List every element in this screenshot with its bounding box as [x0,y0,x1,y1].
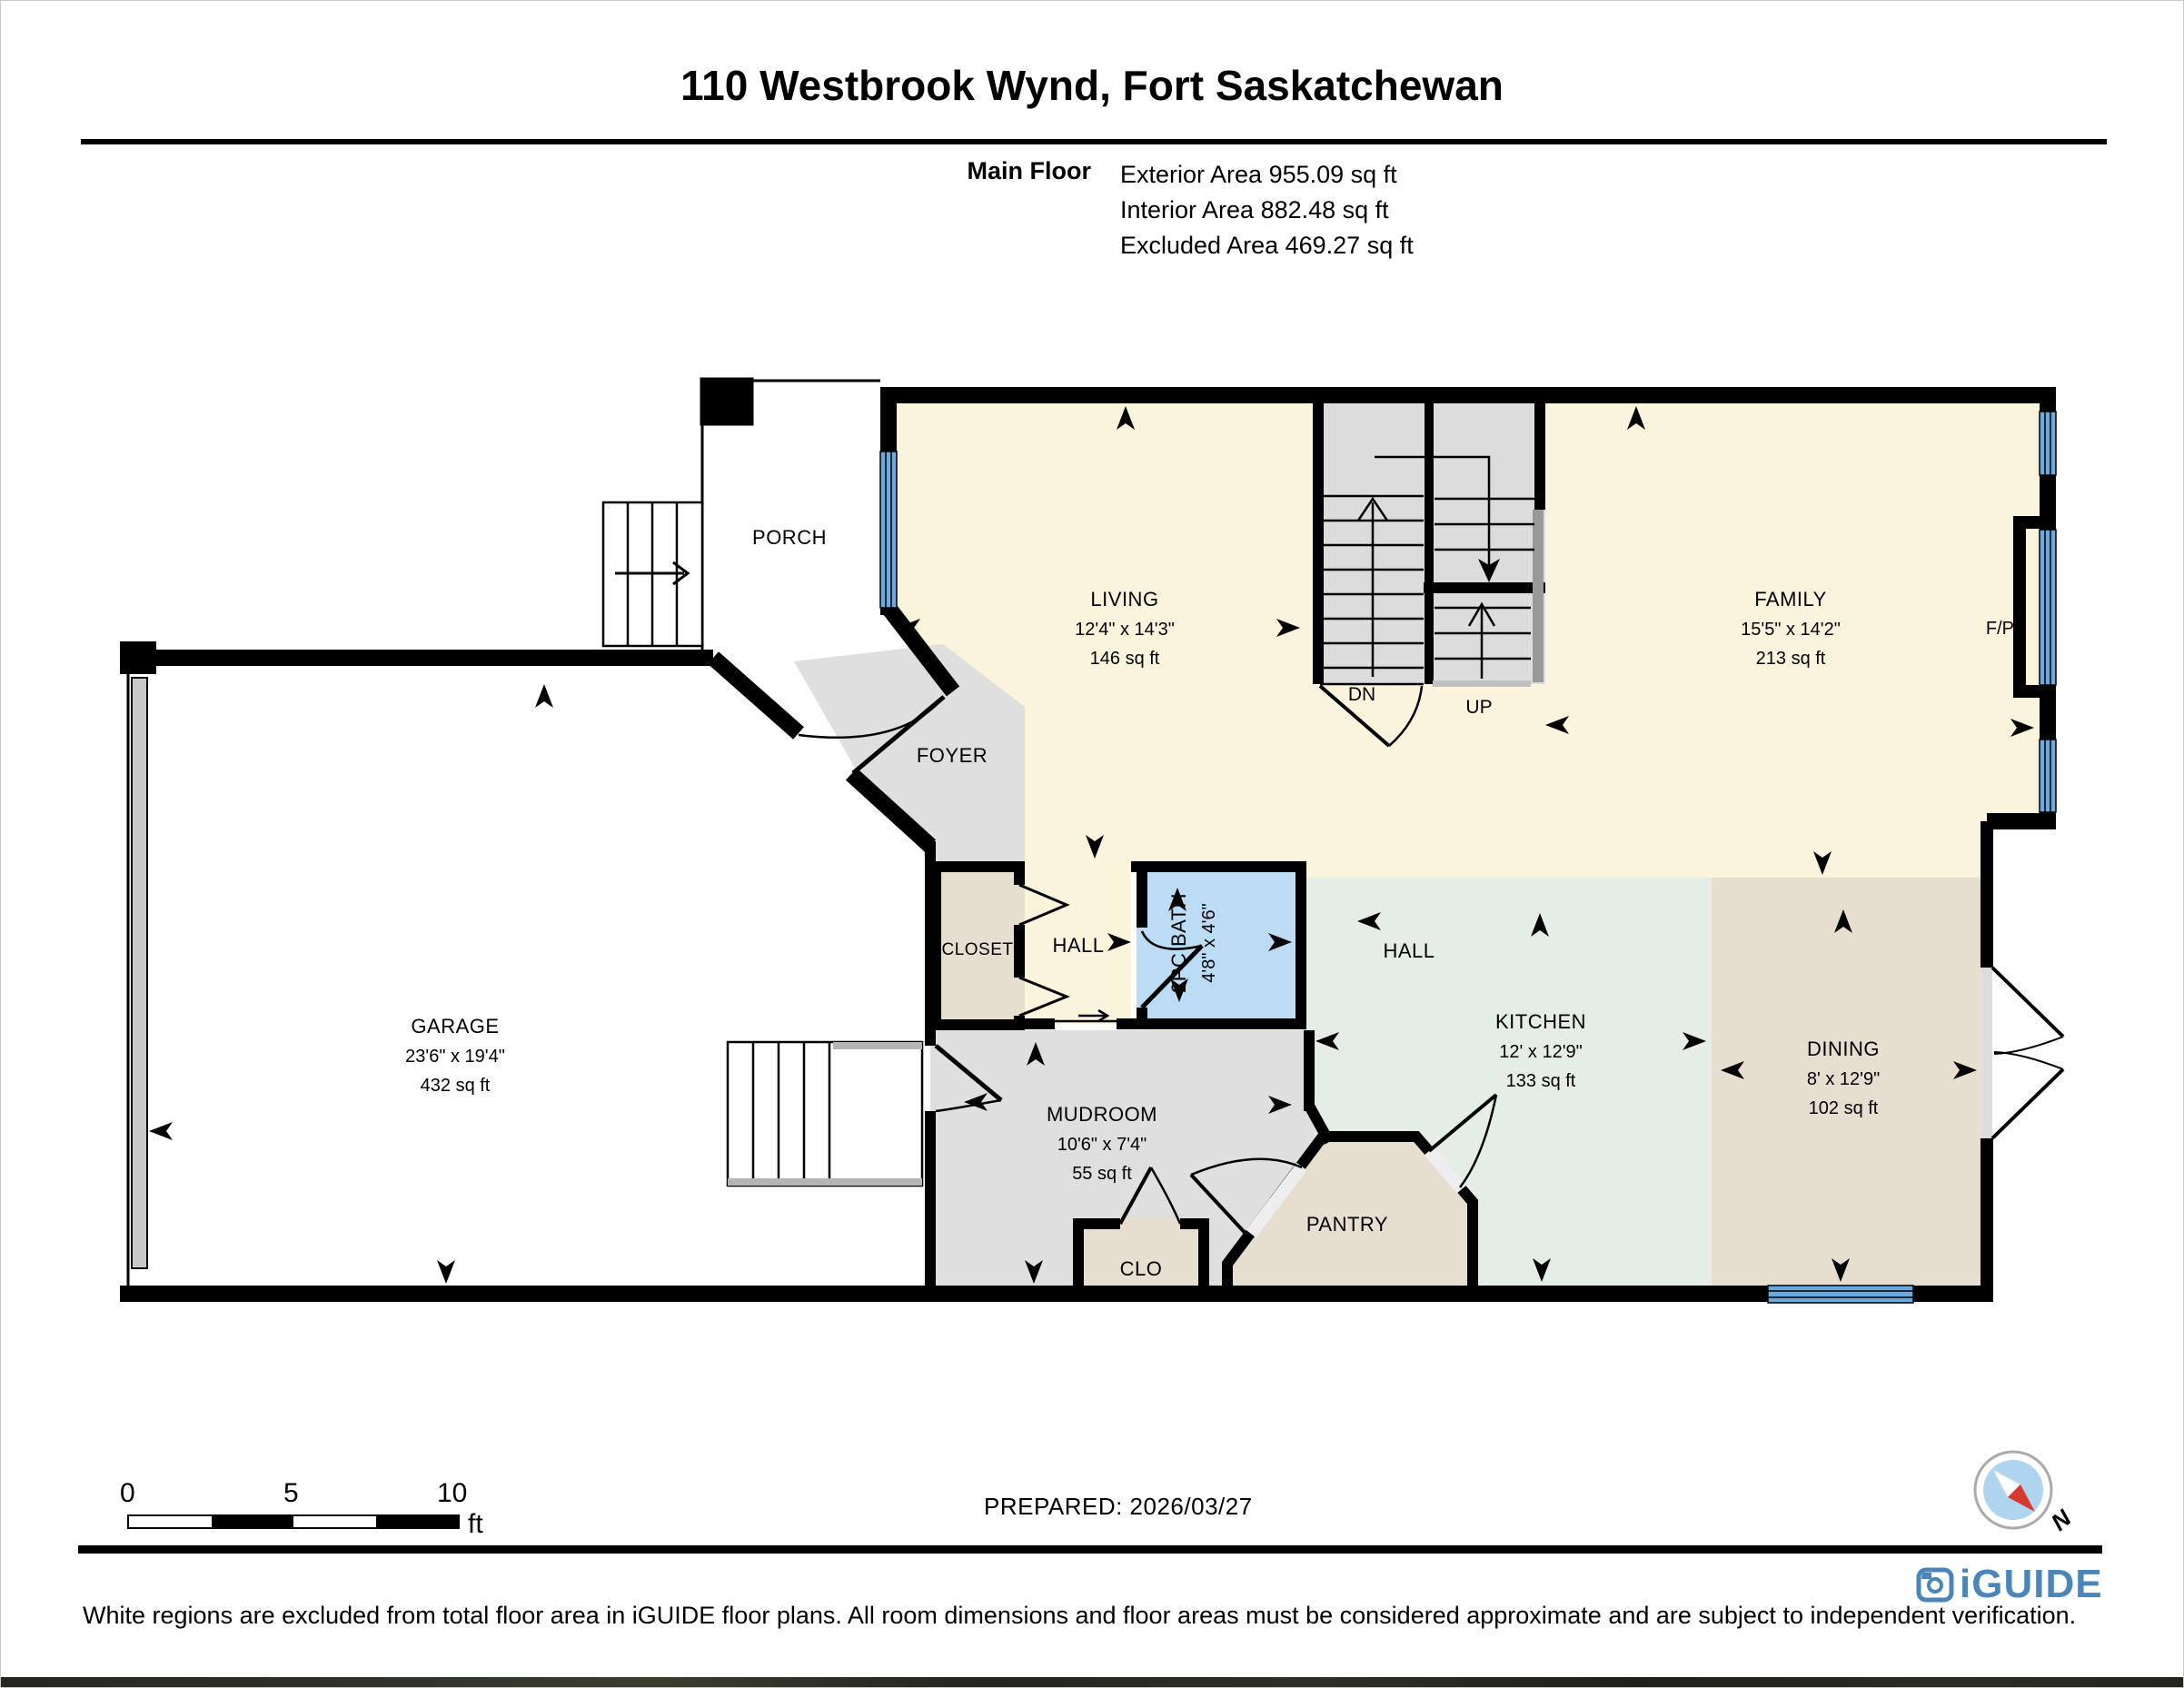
floorplan-page: 110 Westbrook Wynd, Fort Saskatchewan Ma… [0,0,2184,1688]
stairs-down-label: DN [1348,684,1375,705]
room-area-living: 146 sq ft [1090,649,1160,669]
compass-north-label: N [2046,1504,2078,1536]
room-label-porch: PORCH [752,526,827,549]
room-area-family: 213 sq ft [1756,649,1826,669]
dining-window [1768,1286,1913,1303]
room-label-dining: DINING [1807,1038,1880,1060]
footer-divider [78,1545,2102,1554]
room-area-garage: 432 sq ft [421,1076,491,1096]
room-label-family: FAMILY [1754,588,1827,611]
room-label-bath: 2PC BATH [1167,893,1190,993]
scale-middle: 5 [283,1478,299,1509]
iguide-logo-text: iGUIDE [1960,1562,2103,1607]
room-label-hall-lower: HALL [1052,934,1104,957]
iguide-logo: iGUIDE [1916,1562,2103,1607]
room-label-hall-upper: HALL [1383,939,1434,962]
room-label-kitchen: KITCHEN [1495,1010,1586,1033]
room-dims-bath: 4'8" x 4'6" [1199,903,1219,982]
room-label-closet: CLOSET [941,940,1013,959]
room-dims-dining: 8' x 12'9" [1807,1069,1880,1089]
room-label-pantry: PANTRY [1306,1213,1388,1236]
scale-bar [127,1514,460,1529]
scale-start: 0 [120,1478,135,1509]
porch-outline [700,378,880,650]
stairs-up-label: UP [1465,697,1492,718]
room-dims-family: 15'5" x 14'2" [1741,620,1841,640]
room-label-fireplace: F/P [1986,619,2014,639]
prepared-date: PREPARED: 2026/03/27 [984,1493,1253,1521]
room-label-clo: CLO [1120,1257,1163,1280]
room-fills [794,387,2048,1294]
garage-steps [728,1042,922,1186]
room-label-foyer: FOYER [917,744,988,767]
room-label-mudroom: MUDROOM [1047,1103,1157,1126]
compass-icon: N [1973,1450,2091,1550]
scale-unit: ft [468,1509,483,1540]
room-area-mudroom: 55 sq ft [1072,1164,1132,1184]
living-window [880,452,897,608]
fireplace-window [2040,530,2056,685]
room-dims-living: 12'4" x 14'3" [1075,620,1175,640]
room-dims-kitchen: 12' x 12'9" [1499,1042,1582,1062]
family-window-lower [2040,740,2056,812]
room-dims-garage: 23'6" x 19'4" [405,1047,505,1067]
patio-double-door [1982,968,2063,1138]
floor-plan: PORCH LIVING 12'4" x 14'3" 146 sq ft FAM… [1,1,2184,1688]
porch-steps [603,502,702,646]
room-label-garage: GARAGE [411,1015,499,1038]
scale-end: 10 [437,1478,467,1509]
room-area-kitchen: 133 sq ft [1506,1071,1576,1091]
room-label-living: LIVING [1090,588,1158,611]
iguide-camera-icon [1916,1566,1954,1603]
bottom-photo-edge [1,1677,2183,1687]
disclaimer-text: White regions are excluded from total fl… [83,1602,2076,1630]
room-dims-mudroom: 10'6" x 7'4" [1057,1135,1147,1155]
family-window-upper [2040,412,2056,475]
room-area-dining: 102 sq ft [1809,1098,1879,1118]
